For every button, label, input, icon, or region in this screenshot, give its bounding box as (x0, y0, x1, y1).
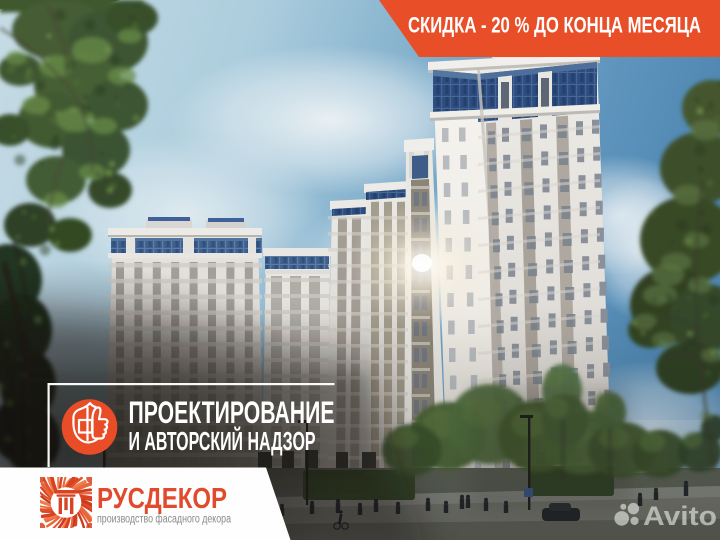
svg-text:Avito: Avito (643, 501, 717, 531)
svg-text:производство фасадного декора: производство фасадного декора (97, 514, 231, 526)
svg-text:И АВТОРСКИЙ НАДЗОР: И АВТОРСКИЙ НАДЗОР (129, 426, 316, 456)
svg-text:ПРОЕКТИРОВАНИЕ: ПРОЕКТИРОВАНИЕ (129, 394, 335, 430)
svg-text:СКИДКА - 20 % ДО КОНЦА МЕСЯЦА: СКИДКА - 20 % ДО КОНЦА МЕСЯЦА (408, 13, 701, 38)
svg-text:РУСДЕКОР: РУСДЕКОР (97, 483, 227, 515)
